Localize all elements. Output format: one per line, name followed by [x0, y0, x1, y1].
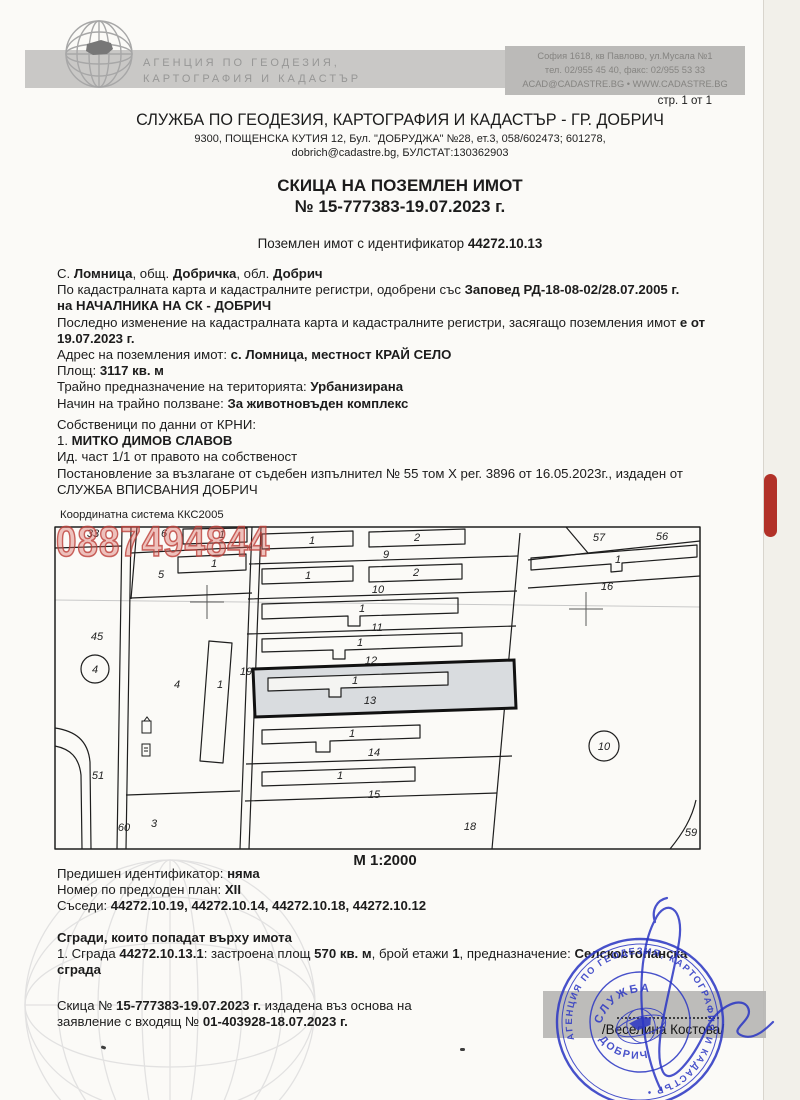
svg-text:15: 15 — [368, 789, 381, 801]
text-line: Съседи: 44272.10.19, 44272.10.14, 44272.… — [57, 898, 426, 914]
text-line: Скица № 15-777383-19.07.2023 г. издадена… — [57, 998, 412, 1014]
text-line: заявление с входящ № 01-403928-18.07.202… — [57, 1014, 412, 1030]
handwritten-signature — [545, 880, 775, 1100]
text-line: Ид. част 1/1 от правото на собственост — [57, 449, 683, 465]
svg-text:14: 14 — [368, 747, 380, 759]
owners-section: Собственици по данни от КРНИ: 1. МИТКО Д… — [57, 417, 683, 498]
phone-watermark: 0887494844 — [56, 518, 270, 567]
office-title: СЛУЖБА ПО ГЕОДЕЗИЯ, КАРТОГРАФИЯ И КАДАСТ… — [0, 111, 800, 130]
text-line: Постановление за възлагане от съдебен из… — [57, 466, 683, 482]
svg-text:18: 18 — [464, 821, 477, 833]
svg-text:5: 5 — [158, 569, 165, 581]
svg-text:11: 11 — [371, 622, 382, 634]
svg-text:2: 2 — [412, 567, 419, 579]
svg-text:12: 12 — [365, 655, 377, 667]
document-number: № 15-777383-19.07.2023 г. — [0, 197, 800, 217]
contact-line-3: ACAD@CADASTRE.BG • WWW.CADASTRE.BG — [505, 77, 745, 91]
page-number: стр. 1 от 1 — [612, 95, 712, 107]
svg-text:60: 60 — [118, 822, 131, 834]
svg-text:1: 1 — [615, 554, 621, 566]
svg-text:51: 51 — [92, 770, 104, 782]
svg-text:13: 13 — [364, 695, 377, 707]
property-description: С. Ломница, общ. Добричка, обл. Добрич П… — [57, 266, 705, 412]
svg-text:45: 45 — [91, 631, 104, 643]
svg-text:1: 1 — [217, 679, 223, 691]
svg-text:10: 10 — [372, 584, 385, 596]
svg-text:4: 4 — [92, 664, 98, 676]
text-line: СЛУЖБА ВПИСВАНИЯ ДОБРИЧ — [57, 482, 683, 498]
svg-text:3: 3 — [151, 818, 158, 830]
text-line: Номер по предходен план: XII — [57, 882, 426, 898]
svg-text:1: 1 — [305, 570, 311, 582]
issue-statement: Скица № 15-777383-19.07.2023 г. издадена… — [57, 998, 412, 1030]
text-line: 1. МИТКО ДИМОВ СЛАВОВ — [57, 433, 683, 449]
contact-line-2: тел. 02/955 45 40, факс: 02/955 53 33 — [505, 63, 745, 77]
text-line: на НАЧАЛНИКА НА СК - ДОБРИЧ — [57, 298, 705, 314]
scan-speck — [460, 1048, 465, 1051]
office-address-line2: dobrich@cadastre.bg, БУЛСТАТ:130362903 — [0, 147, 800, 159]
svg-text:9: 9 — [383, 549, 389, 561]
agency-name-line2: КАРТОГРАФИЯ И КАДАСТЪР — [143, 73, 361, 85]
text-line: По кадастралната карта и кадастралните р… — [57, 282, 705, 298]
agency-globe-logo-icon — [62, 17, 136, 91]
svg-text:16: 16 — [601, 581, 614, 593]
map-symbol-icons — [142, 717, 151, 756]
red-scroll-marker — [764, 474, 777, 537]
agency-name-line1: АГЕНЦИЯ ПО ГЕОДЕЗИЯ, — [143, 57, 340, 69]
svg-text:1: 1 — [352, 675, 358, 687]
svg-text:1: 1 — [349, 728, 355, 740]
text-line: С. Ломница, общ. Добричка, обл. Добрич — [57, 266, 705, 282]
cadastral-map: 3361514541195160312912101111121131141151… — [50, 522, 710, 854]
identifier-history-section: Предишен идентификатор: няма Номер по пр… — [57, 866, 426, 915]
text-line: Последно изменение на кадастралната карт… — [57, 315, 705, 331]
svg-text:1: 1 — [337, 770, 343, 782]
svg-text:59: 59 — [685, 827, 697, 839]
text-line: Предишен идентификатор: няма — [57, 866, 426, 882]
text-line: Собственици по данни от КРНИ: — [57, 417, 683, 433]
text-line: Адрес на поземления имот: с. Ломница, ме… — [57, 347, 705, 363]
text-line: Трайно предназначение на територията: Ур… — [57, 379, 705, 395]
parcel-identifier-line: Поземлен имот с идентификатор 44272.10.1… — [0, 236, 800, 251]
svg-text:1: 1 — [359, 603, 365, 615]
svg-text:1: 1 — [309, 535, 315, 547]
contact-line-1: София 1618, кв Павлово, ул.Мусала №1 — [505, 49, 745, 63]
text-line: Начин на трайно ползване: За животновъде… — [57, 396, 705, 412]
svg-text:1: 1 — [357, 637, 363, 649]
svg-text:57: 57 — [593, 532, 606, 544]
office-address-line1: 9300, ПОЩЕНСКА КУТИЯ 12, Бул. "ДОБРУДЖА"… — [0, 133, 800, 145]
svg-text:10: 10 — [598, 741, 611, 753]
svg-text:19: 19 — [240, 666, 252, 678]
document-title: СКИЦА НА ПОЗЕМЛЕН ИМОТ — [0, 176, 800, 196]
svg-text:2: 2 — [413, 532, 420, 544]
scanned-document-page: { "colors": {"accent_red": "#b23128", "s… — [0, 0, 800, 1100]
svg-text:4: 4 — [174, 679, 180, 691]
text-line: 19.07.2023 г. — [57, 331, 705, 347]
header-contact-box: София 1618, кв Павлово, ул.Мусала №1 тел… — [505, 46, 745, 95]
svg-text:56: 56 — [656, 531, 669, 543]
text-line: Площ: 3117 кв. м — [57, 363, 705, 379]
